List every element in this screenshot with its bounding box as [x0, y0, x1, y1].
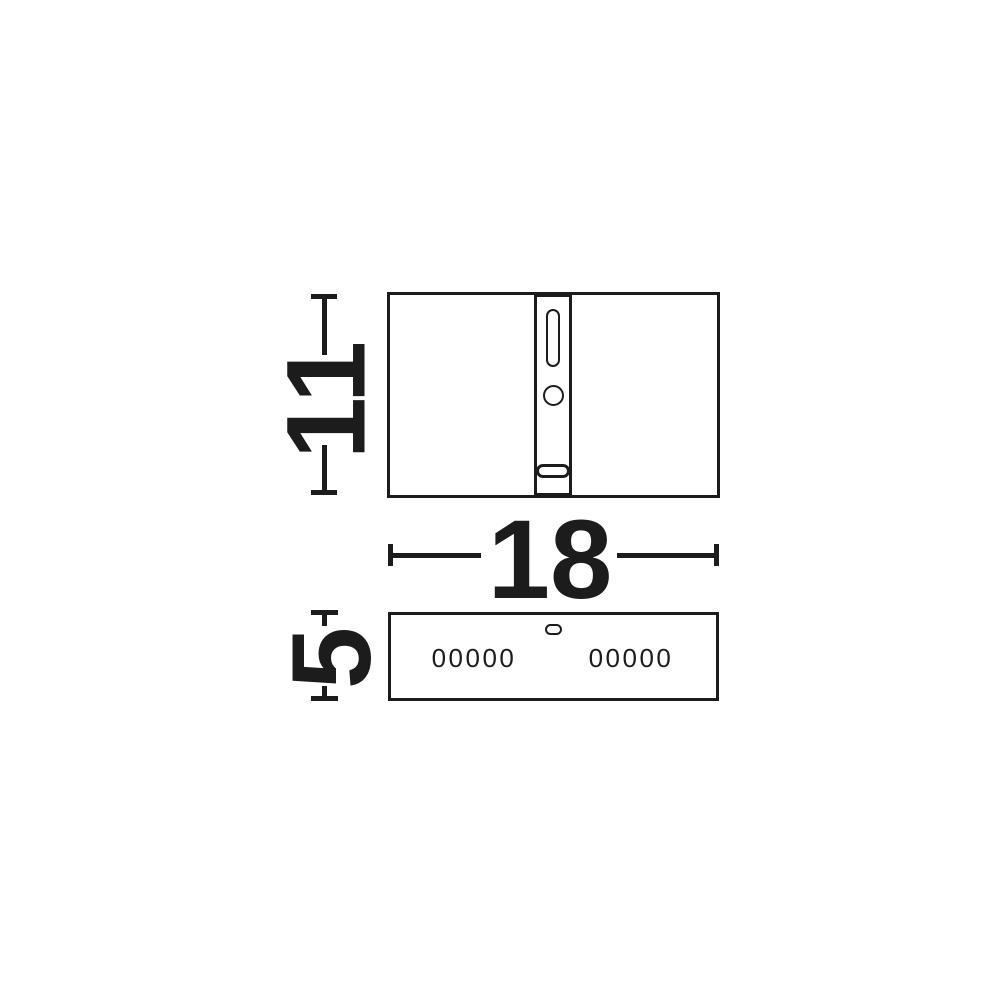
dim-height-label: 11	[267, 340, 387, 461]
dim-depth-tick-bottom	[311, 696, 338, 701]
dim-width-tick-right	[714, 544, 719, 566]
dim-width-line-right	[617, 553, 717, 558]
led-row-right: 00000	[579, 641, 683, 675]
dim-width-label: 18	[470, 506, 630, 614]
mounting-slot-horizontal	[536, 464, 570, 478]
mounting-slot-vertical	[546, 309, 560, 367]
technical-drawing-canvas: 11 18 00000 00000 5	[0, 0, 1000, 1000]
dim-height-tick-bottom	[311, 490, 337, 495]
dim-width-line-left	[391, 553, 481, 558]
mounting-hole-round	[543, 385, 564, 406]
led-row-left: 00000	[422, 641, 526, 675]
cable-entry-hole	[545, 624, 562, 635]
dim-height-line-bottom	[322, 445, 327, 493]
